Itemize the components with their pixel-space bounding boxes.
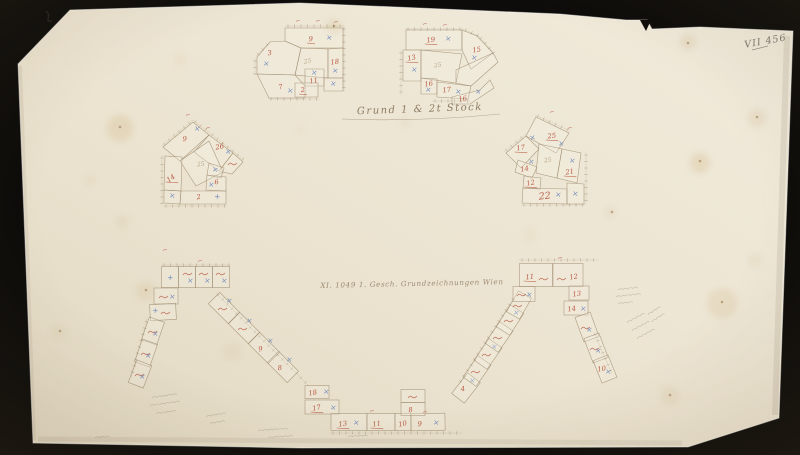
historical-floor-plan-drawing: 9×3×2518×11×7×2×19×15×13×2516×17×16×9×26… — [0, 0, 800, 455]
fox-spot — [721, 301, 724, 304]
cross-mark: × — [411, 65, 418, 75]
cross-mark: × — [445, 34, 452, 44]
room-number: 14 — [567, 304, 577, 313]
room-number: 25 — [196, 161, 206, 169]
cross-mark: × — [169, 191, 176, 201]
cross-mark: × — [558, 139, 565, 149]
cross-mark: × — [528, 157, 535, 167]
cross-mark: × — [145, 351, 152, 361]
room — [411, 413, 445, 431]
room-number: 11 — [525, 273, 534, 282]
room-number: 2 — [299, 86, 305, 95]
drawing-layer: 9×3×2518×11×7×2×19×15×13×2516×17×16×9×26… — [0, 0, 800, 455]
cross-mark: × — [286, 355, 293, 365]
cross-mark: × — [330, 403, 337, 413]
cross-mark: + — [167, 273, 174, 283]
cross-mark: × — [595, 346, 602, 356]
cross-mark: + — [214, 192, 221, 202]
room-number: 13 — [338, 420, 347, 429]
room-number: 19 — [426, 36, 436, 45]
fox-spot — [669, 394, 672, 397]
cross-mark: × — [152, 329, 159, 339]
room-number: 17 — [442, 86, 452, 95]
cross-mark: × — [326, 33, 333, 43]
cross-mark: × — [475, 87, 482, 97]
paper-stain — [400, 117, 410, 127]
fox-spot — [611, 211, 614, 214]
cross-mark: × — [569, 156, 576, 166]
room-number: 4 — [459, 385, 465, 394]
cross-mark: × — [353, 418, 360, 428]
room-number: 12 — [569, 272, 579, 281]
room-number: 11 — [372, 419, 382, 428]
room — [331, 414, 367, 431]
paper-stain — [690, 153, 710, 173]
paper-stain — [296, 126, 304, 134]
fox-spot — [59, 330, 62, 333]
cross-mark: × — [323, 387, 330, 397]
cross-mark: × — [425, 85, 432, 95]
cross-mark: × — [204, 276, 211, 286]
room — [164, 156, 182, 191]
fox-spot — [119, 126, 122, 129]
room-number: 25 — [546, 132, 556, 141]
room-number: 21 — [564, 167, 575, 176]
cross-mark: × — [225, 147, 232, 157]
room-number: 25 — [543, 157, 553, 165]
cross-mark: × — [212, 165, 219, 175]
fox-spot — [699, 160, 702, 163]
cross-mark: × — [208, 180, 215, 190]
cross-mark: × — [139, 372, 146, 382]
paper-stain — [223, 343, 241, 361]
cross-mark: × — [572, 189, 579, 199]
cross-mark: × — [263, 59, 270, 69]
scanned-plan-sheet: 9×3×2518×11×7×2×19×15×13×2516×17×16×9×26… — [0, 0, 800, 455]
room-number: 13 — [572, 290, 581, 299]
paper-stain — [51, 325, 65, 339]
paper-stain — [524, 229, 536, 241]
paper-stain — [136, 282, 154, 300]
cross-mark: × — [221, 276, 228, 286]
cross-mark: × — [267, 336, 274, 346]
cross-mark: + — [152, 306, 159, 316]
fox-spot — [687, 42, 690, 45]
paper-stain — [604, 206, 616, 218]
paper-stain — [116, 216, 128, 228]
fox-spot — [756, 116, 759, 119]
cross-mark: × — [586, 325, 593, 335]
cross-mark: × — [580, 304, 587, 314]
room — [401, 390, 425, 403]
cross-mark: × — [555, 190, 562, 200]
paper-stain — [85, 175, 95, 185]
cross-mark: × — [433, 418, 440, 428]
cross-mark: × — [287, 86, 294, 96]
cross-mark: × — [330, 79, 337, 89]
cross-mark: × — [169, 292, 176, 302]
cross-mark: × — [332, 66, 339, 76]
room-number: 22 — [537, 190, 551, 202]
cross-mark: × — [311, 68, 318, 78]
cross-mark: × — [526, 290, 533, 300]
paper-stain — [174, 54, 186, 66]
cross-mark: × — [187, 276, 194, 286]
room-number: 25 — [433, 62, 443, 70]
fox-spot — [145, 289, 148, 292]
paper-stain — [748, 253, 762, 267]
